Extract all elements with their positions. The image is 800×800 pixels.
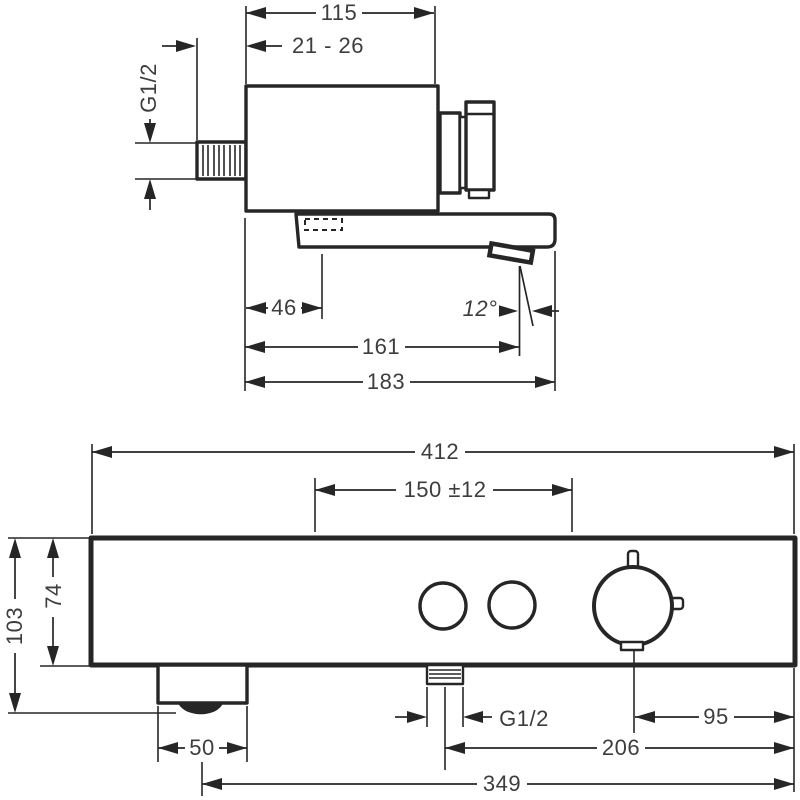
mixer-dimension-drawing: 115 21 - 26 G1/2 — [0, 0, 800, 800]
dim-inlet-centers: 150 ±12 — [315, 477, 572, 532]
dim-161-label: 161 — [362, 334, 400, 359]
dim-body-height: 74 — [40, 538, 89, 666]
dim-50-label: 50 — [189, 735, 214, 760]
dim-74-label: 74 — [41, 583, 66, 608]
dim-150-label: 150 ±12 — [404, 477, 487, 502]
select-button-left — [420, 583, 466, 629]
dim-total-depth: 183 — [245, 251, 555, 394]
dim-slot-offset: 46 — [246, 254, 322, 320]
dim-103-label: 103 — [2, 607, 27, 645]
dim-183-label: 183 — [367, 369, 405, 394]
dim-spout-angle: 12° — [461, 266, 559, 356]
mixer-body-side — [246, 86, 438, 211]
dim-foot-width: 50 — [158, 706, 247, 762]
dim-g12-front-label: G1/2 — [499, 706, 549, 731]
dim-outlet-thread: G1/2 — [395, 687, 557, 770]
wall-nipple-side — [197, 142, 246, 179]
dim-206-label: 206 — [602, 735, 640, 760]
front-view: 412 150 ±12 103 — [2, 439, 795, 796]
dim-349-label: 349 — [483, 771, 521, 796]
dim-foot-to-edge: 349 — [202, 762, 794, 796]
dim-outlet-to-edge: 206 — [445, 735, 794, 760]
dim-spout-reach: 161 — [245, 334, 519, 359]
dim-115-label: 115 — [321, 0, 358, 25]
thermostat-handle-side — [440, 102, 494, 198]
dim-knob-to-edge: 95 — [635, 704, 794, 729]
select-button-right — [489, 582, 535, 628]
knob-bottom-marker — [621, 642, 643, 650]
dim-g12-side-label: G1/2 — [136, 63, 161, 113]
outlet-nipple-front — [427, 665, 463, 684]
dim-12deg-label: 12° — [463, 296, 498, 321]
dim-21-26-label: 21 - 26 — [292, 33, 364, 58]
technical-drawing-page: 115 21 - 26 G1/2 — [0, 0, 800, 800]
side-view: 115 21 - 26 G1/2 — [133, 0, 559, 394]
dim-412-label: 412 — [421, 439, 459, 464]
dim-inlet-thread-side: G1/2 — [133, 55, 196, 210]
dim-95-label: 95 — [703, 704, 728, 729]
dim-46-label: 46 — [271, 295, 296, 320]
spout-side — [296, 214, 555, 247]
mounting-foot — [158, 665, 247, 714]
foot-gasket — [178, 703, 223, 714]
